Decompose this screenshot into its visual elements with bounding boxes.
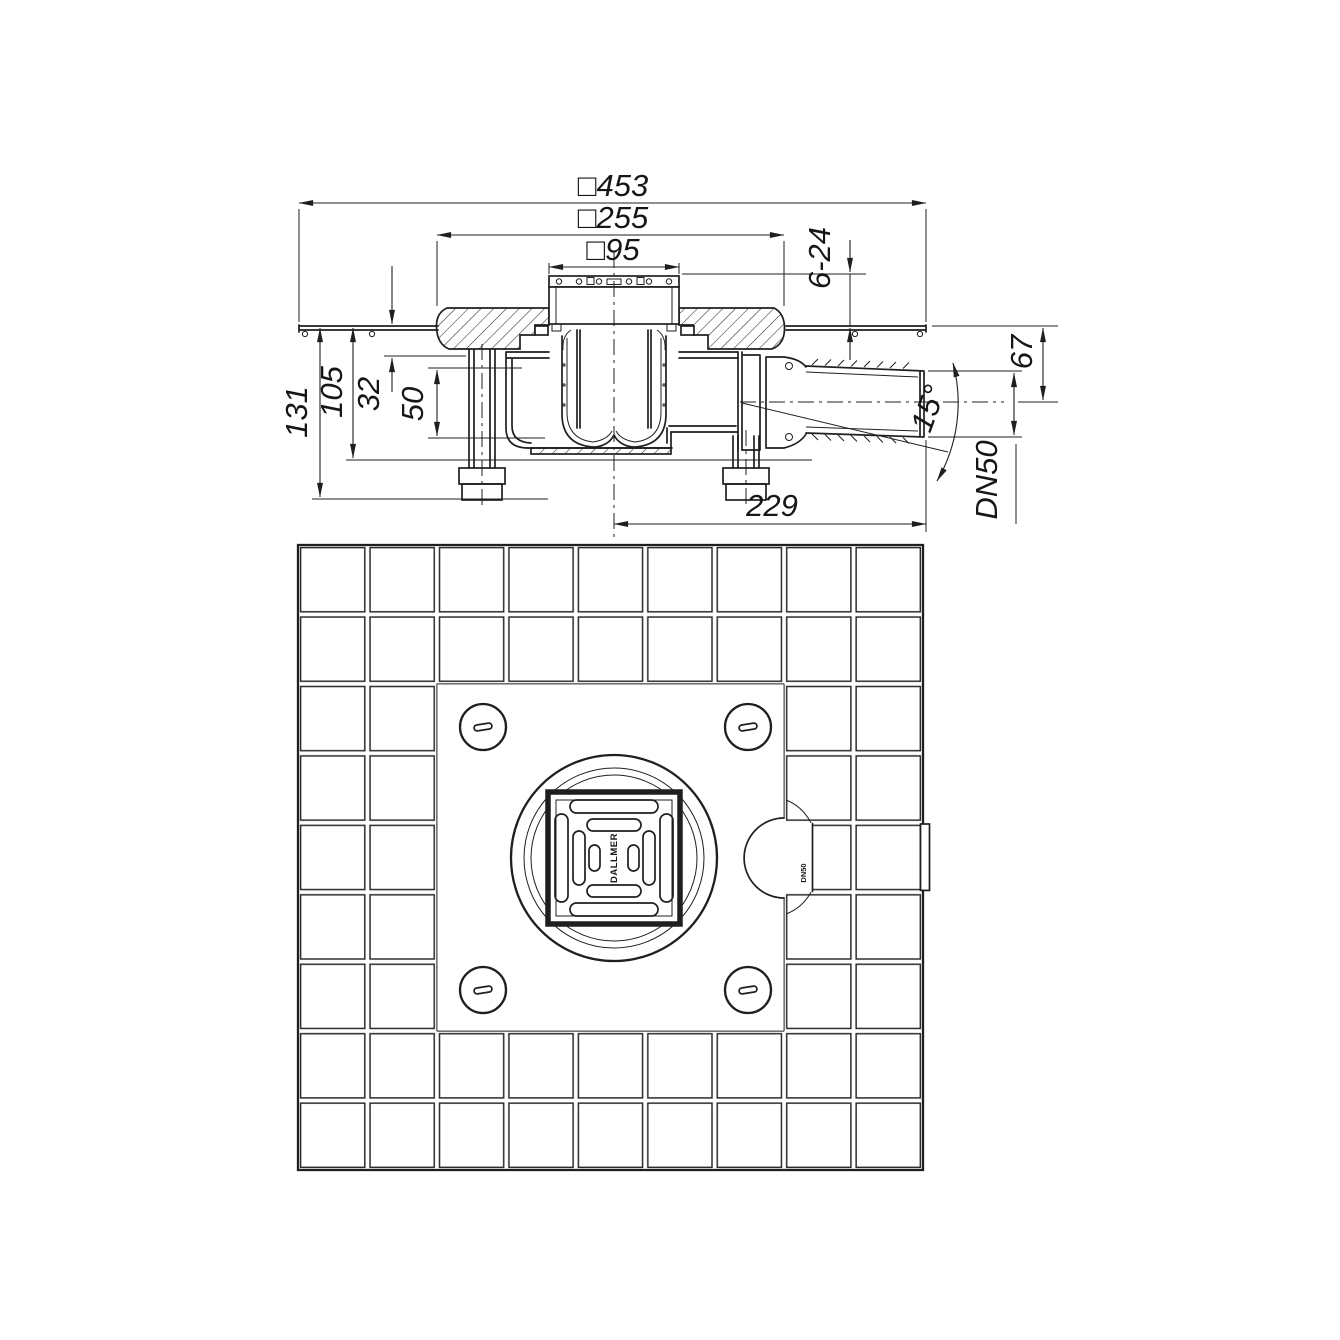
drain-grate: DALLMER: [548, 792, 680, 924]
support-leg-left: [459, 344, 505, 508]
fastening-screw: [725, 704, 771, 750]
dim-flange-depth: 32: [351, 377, 386, 411]
dim-frame-width: □95: [586, 232, 640, 267]
dim-outlet-angle: 15°: [904, 380, 953, 436]
dim-body-height: 105: [314, 365, 349, 417]
technical-drawing: □453 □255 □95 6-24 67 131 105 32 50 229 …: [0, 0, 1340, 1340]
sealing-membrane: [299, 325, 926, 337]
dim-total-height: 131: [279, 386, 314, 438]
fastening-screw: [725, 967, 771, 1013]
fastening-screw: [460, 704, 506, 750]
dim-flange-width: □255: [578, 200, 649, 235]
dim-water-seal: 50: [395, 387, 430, 421]
section-view: □453 □255 □95 6-24 67 131 105 32 50 229 …: [279, 168, 1058, 540]
dim-overall-width: □453: [578, 168, 648, 203]
fastening-screw: [460, 967, 506, 1013]
drain-grate-assembly: DALLMER: [511, 755, 717, 961]
dim-tile-thickness-range: 6-24: [802, 227, 837, 289]
dim-outlet-dn: DN50: [969, 440, 1004, 519]
pipe-marking: DN50: [799, 863, 808, 882]
dim-outlet-height: 67: [1004, 333, 1039, 369]
grate-brand-label: DALLMER: [609, 833, 620, 883]
dimensions: [299, 203, 1058, 532]
plan-view: DN50: [298, 545, 930, 1170]
drawing-canvas: □453 □255 □95 6-24 67 131 105 32 50 229 …: [0, 0, 1340, 1340]
dim-outlet-offset: 229: [745, 488, 798, 523]
pipe-end-protrusion: [921, 824, 930, 890]
